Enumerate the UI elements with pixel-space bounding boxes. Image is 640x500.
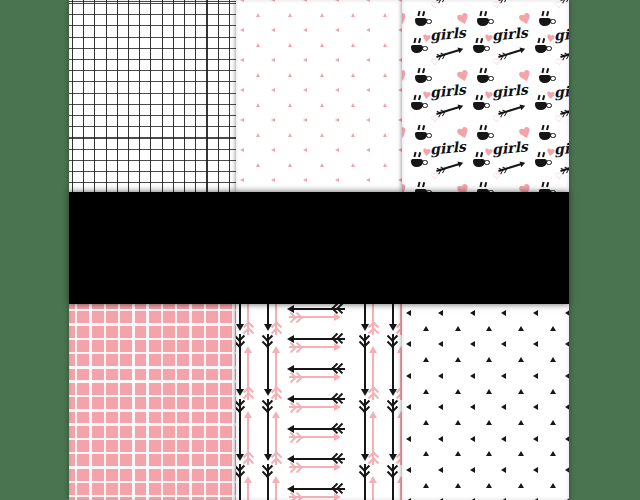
triangle-icon [501,467,506,473]
triangle-icon [455,326,461,331]
triangle-icon [366,58,370,62]
triangle-icon [550,326,556,331]
swatch-girls-pattern: ♡♥♥♥girls♡♥♥♥girls♡♥♥♥girls♡♥♥♥girls♡♥♥♥… [402,0,569,192]
triangle-icon [303,0,307,2]
arrow-icon [247,417,249,465]
triangle-icon [438,404,443,410]
arrow-icon [267,464,269,500]
triangle-icon [256,43,260,47]
triangle-icon [335,0,339,2]
arrow-icon [275,482,277,500]
triangle-icon [423,451,429,456]
triangle-icon [288,133,292,137]
triangle-icon [518,389,524,394]
triangle-icon [470,341,475,347]
triangle-icon [501,436,506,442]
arrow-icon [247,482,249,500]
triangle-icon [501,310,506,316]
triangle-icon [470,404,475,410]
triangle-icon [501,404,506,410]
triangle-icon [303,118,307,122]
heart-icon: ♥ [402,181,409,192]
triangle-icon [455,451,461,456]
triangle-icon [486,420,492,425]
arrow-icon [289,496,335,498]
triangle-icon [406,373,411,379]
triangle-icon [288,103,292,107]
triangle-icon [240,148,244,152]
triangle-icon [256,163,260,167]
swatch-black-triangles [402,304,569,500]
triangle-icon [366,0,370,2]
arrow-icon [289,376,335,378]
triangle-icon [565,310,569,316]
triangle-icon [240,178,244,182]
triangle-icon [303,88,307,92]
arrow-icon [239,304,241,325]
triangle-icon [533,341,538,347]
triangle-icon [335,178,339,182]
triangle-icon [256,13,260,17]
triangle-icon [470,436,475,442]
triangle-icon [550,483,556,488]
triangle-icon [240,88,244,92]
coffee-cup-icon [539,132,551,140]
coffee-cup-icon [477,75,489,83]
heart-icon: ♥ [402,124,409,141]
arrow-icon [293,428,345,430]
triangle-icon [533,436,538,442]
triangle-icon [303,28,307,32]
arrow-icon [289,436,335,438]
heart-icon: ♥ [402,67,409,84]
triangle-icon [240,118,244,122]
triangle-icon [533,467,538,473]
triangle-icon [550,420,556,425]
triangle-icon [501,341,506,347]
coffee-cup-icon [415,75,427,83]
girls-text: girls [554,138,569,157]
arrow-icon [372,482,374,500]
arrow-icon [289,346,335,348]
triangle-icon [351,73,355,77]
arrow-icon [372,304,374,335]
triangle-icon [533,373,538,379]
coffee-cup-icon [411,45,423,53]
triangle-icon [383,43,387,47]
triangle-icon [550,451,556,456]
paper-swatch-grid: ♡♥♥♥girls♡♥♥♥girls♡♥♥♥girls♡♥♥♥girls♡♥♥♥… [69,0,569,500]
triangle-icon [406,467,411,473]
arrow-icon [364,399,366,455]
triangle-icon [303,148,307,152]
heart-icon: ♥ [517,181,533,192]
arrow-icon [372,352,374,400]
triangle-icon [366,28,370,32]
coffee-cup-icon [415,132,427,140]
coffee-cup-icon [411,159,423,167]
triangle-icon [288,163,292,167]
coffee-cup-icon [473,45,485,53]
triangle-icon [455,483,461,488]
triangle-icon [455,357,461,362]
arrow-icon [437,164,460,172]
triangle-icon [486,451,492,456]
heart-icon: ♥ [455,67,471,84]
coffee-cup-icon [535,102,547,110]
triangle-icon [366,88,370,92]
triangle-icon [470,467,475,473]
swatch-pink-grid [69,304,236,500]
triangle-icon [486,389,492,394]
arrow-icon [392,334,394,390]
triangle-icon [320,133,324,137]
triangle-icon [366,118,370,122]
center-black-band [69,192,569,304]
heart-icon: ♥ [517,67,533,84]
pattern-pack-preview: ♡♥♥♥girls♡♥♥♥girls♡♥♥♥girls♡♥♥♥girls♡♥♥♥… [0,0,640,500]
heart-icon: ♥ [455,181,471,192]
triangle-icon [271,0,275,2]
triangle-icon [518,420,524,425]
arrow-icon [392,399,394,455]
triangle-icon [320,163,324,167]
arrow-icon [247,352,249,400]
arrow-icon [267,399,269,455]
triangle-icon [486,483,492,488]
triangle-icon [518,483,524,488]
triangle-icon [320,103,324,107]
triangle-icon [256,103,260,107]
arrow-icon [499,50,522,58]
triangle-icon [351,103,355,107]
arrow-icon [372,417,374,465]
triangle-icon [256,73,260,77]
arrow-icon [364,334,366,390]
triangle-icon [271,58,275,62]
arrow-icon [364,464,366,500]
arrow-icon [289,466,335,468]
arrow-icon [275,417,277,465]
arrow-icon [499,107,522,115]
triangle-icon [565,373,569,379]
triangle-icon [565,404,569,410]
heart-icon: ♥ [402,10,409,27]
triangle-icon [550,389,556,394]
girls-text: girls [554,81,569,100]
heart-icon: ♥ [517,10,533,27]
triangle-icon [303,58,307,62]
triangle-icon [438,467,443,473]
triangle-icon [271,148,275,152]
arrow-icon [239,334,241,390]
swatch-black-grid [69,0,236,192]
heart-icon: ♥ [455,124,471,141]
triangle-icon [423,389,429,394]
triangle-icon [271,178,275,182]
triangle-icon [335,148,339,152]
triangle-icon [240,58,244,62]
coffee-cup-icon [415,18,427,26]
triangle-icon [470,310,475,316]
triangle-icon [423,483,429,488]
coffee-cup-icon [539,18,551,26]
arrow-icon [293,338,345,340]
swatch-pink-triangles [236,0,403,192]
heart-icon: ♥ [455,10,471,27]
triangle-icon [383,73,387,77]
coffee-cup-icon [535,45,547,53]
triangle-icon [565,341,569,347]
arrow-icon [293,308,345,310]
triangle-icon [351,43,355,47]
arrow-icon [437,0,460,1]
arrow-icon [293,398,345,400]
triangle-icon [455,420,461,425]
arrow-icon [293,488,345,490]
triangle-icon [550,357,556,362]
triangle-icon [565,436,569,442]
triangle-icon [486,357,492,362]
triangle-icon [438,373,443,379]
triangle-icon [366,178,370,182]
arrow-icon [247,304,249,335]
arrow-icon [239,464,241,500]
triangle-icon [383,13,387,17]
triangle-icon [518,451,524,456]
triangle-icon [320,43,324,47]
arrow-icon [267,304,269,325]
triangle-icon [438,436,443,442]
triangle-icon [335,118,339,122]
triangle-icon [565,467,569,473]
triangle-icon [288,13,292,17]
triangle-icon [423,326,429,331]
coffee-cup-icon [539,75,551,83]
arrow-icon [499,164,522,172]
triangle-icon [366,148,370,152]
arrow-icon [437,107,460,115]
arrow-icon [289,316,335,318]
triangle-icon [271,118,275,122]
coffee-cup-icon [473,102,485,110]
triangle-icon [240,28,244,32]
arrow-icon [239,399,241,455]
triangle-icon [533,310,538,316]
triangle-icon [288,43,292,47]
heart-icon: ♥ [517,124,533,141]
coffee-cup-icon [411,102,423,110]
arrow-icon [289,406,335,408]
triangle-icon [438,341,443,347]
triangle-icon [383,103,387,107]
triangle-icon [383,163,387,167]
triangle-icon [533,404,538,410]
triangle-icon [288,73,292,77]
triangle-icon [335,28,339,32]
triangle-icon [383,133,387,137]
triangle-icon [320,73,324,77]
arrow-icon [499,0,522,1]
coffee-cup-icon [535,159,547,167]
triangle-icon [406,404,411,410]
arrow-icon [364,304,366,325]
arrow-icon [293,458,345,460]
triangle-icon [240,0,244,2]
triangle-icon [406,341,411,347]
triangle-icon [406,310,411,316]
triangle-icon [256,133,260,137]
triangle-icon [423,357,429,362]
triangle-icon [501,373,506,379]
coffee-cup-icon [473,159,485,167]
triangle-icon [351,13,355,17]
girls-text: girls [554,24,569,43]
triangle-icon [271,28,275,32]
arrow-icon [267,334,269,390]
arrow-icon [275,304,277,335]
triangle-icon [470,373,475,379]
arrow-icon [437,50,460,58]
arrow-icon [392,304,394,325]
coffee-cup-icon [477,18,489,26]
triangle-icon [303,178,307,182]
coffee-cup-icon [477,132,489,140]
triangle-icon [271,88,275,92]
triangle-icon [406,436,411,442]
triangle-icon [455,389,461,394]
triangle-icon [335,88,339,92]
triangle-icon [351,133,355,137]
triangle-icon [518,326,524,331]
swatch-arrows [236,304,403,500]
triangle-icon [438,310,443,316]
triangle-icon [335,58,339,62]
triangle-icon [351,163,355,167]
arrow-icon [392,464,394,500]
triangle-icon [518,357,524,362]
triangle-icon [320,13,324,17]
arrow-icon [293,368,345,370]
triangle-icon [486,326,492,331]
triangle-icon [423,420,429,425]
arrow-icon [275,352,277,400]
